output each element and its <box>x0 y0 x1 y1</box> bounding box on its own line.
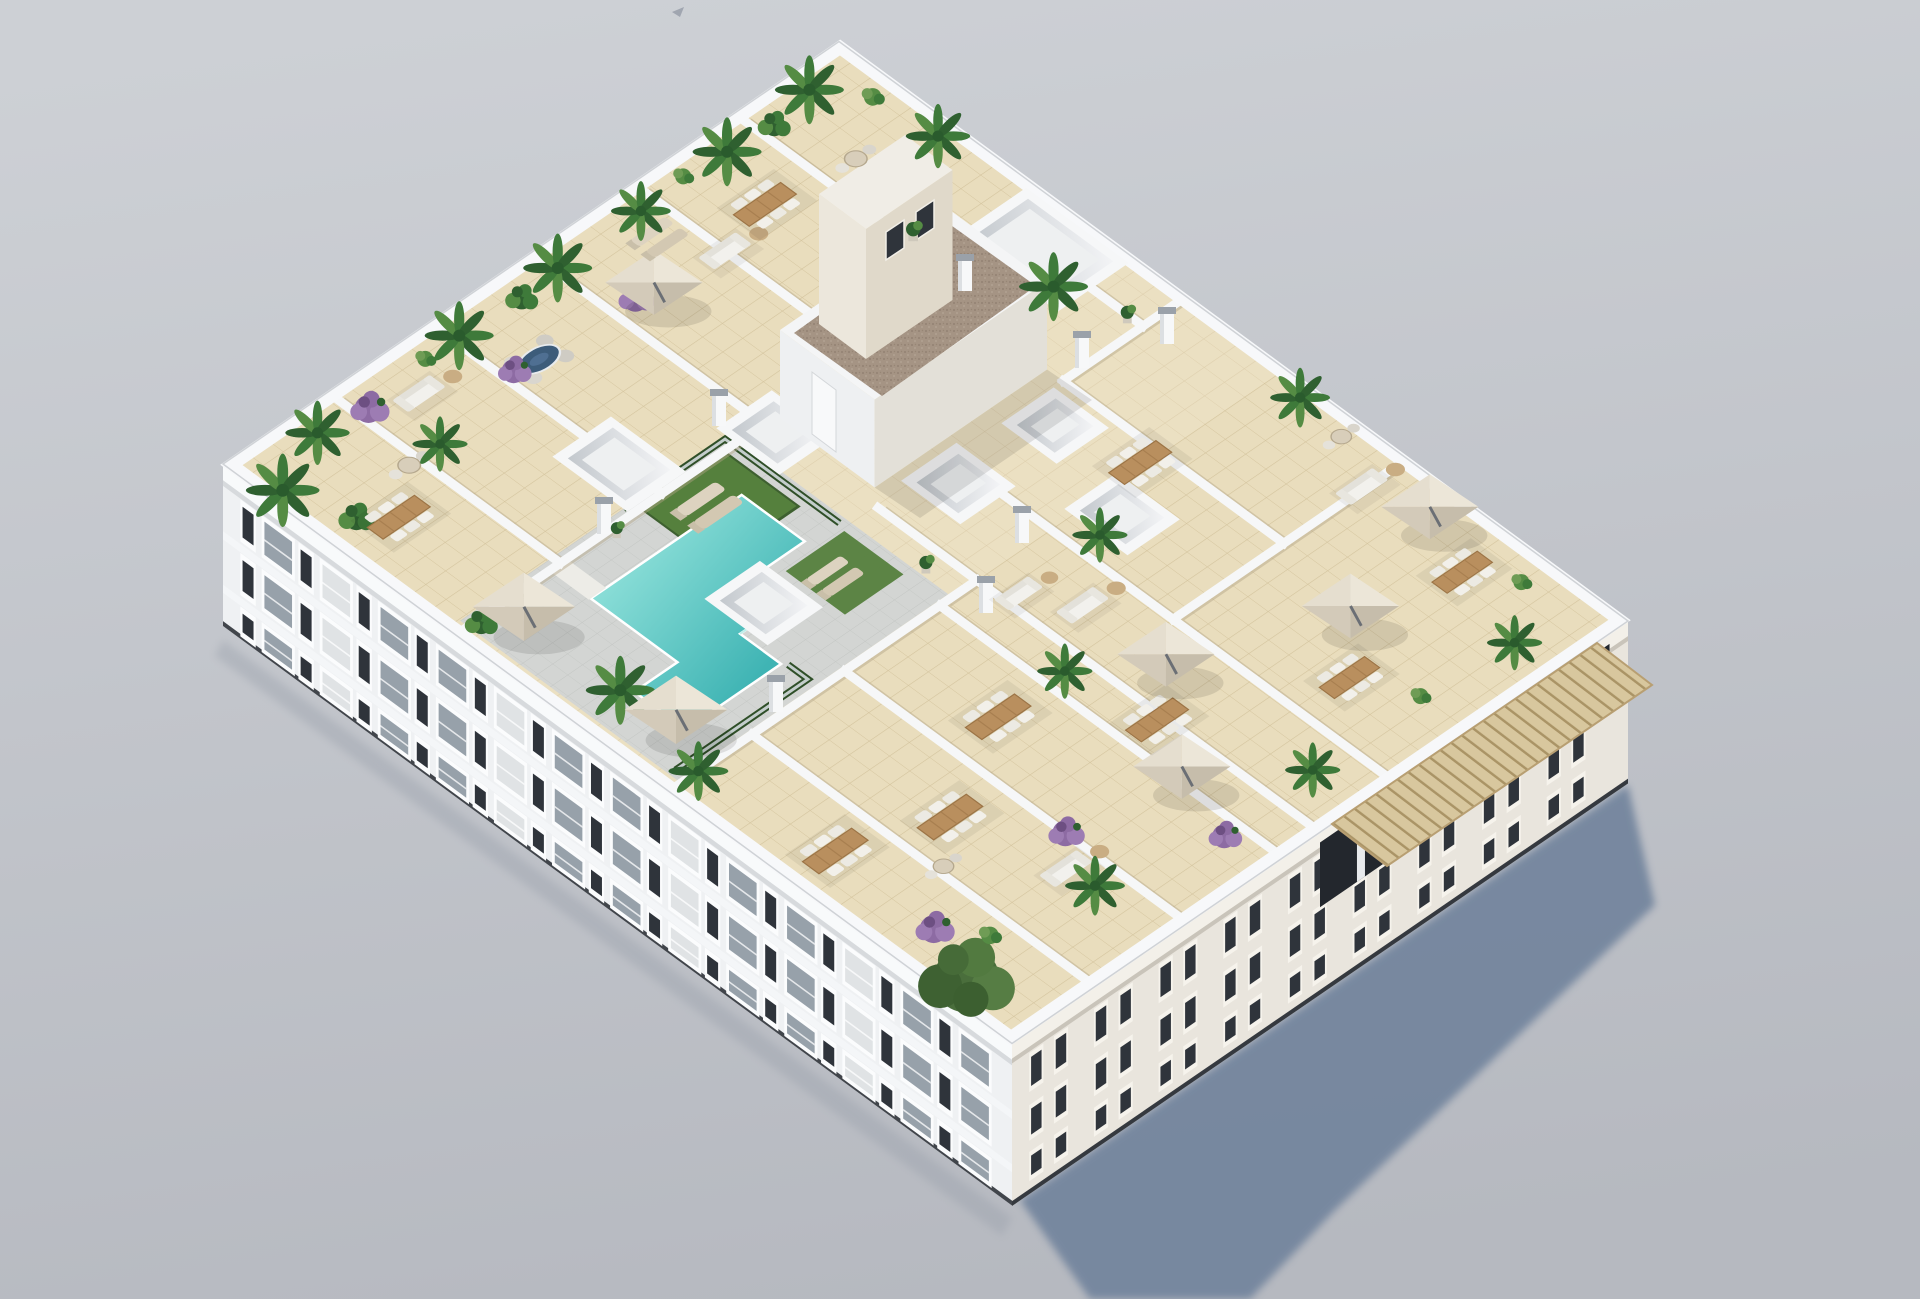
palm <box>1270 368 1330 428</box>
palm <box>1037 644 1092 699</box>
palm <box>611 181 671 241</box>
palm <box>693 117 762 186</box>
palm <box>1285 742 1340 797</box>
palm <box>412 416 467 471</box>
palm <box>1019 252 1088 321</box>
chimney <box>1158 307 1176 344</box>
palm <box>285 401 349 465</box>
chimney <box>710 389 728 426</box>
palm <box>1487 615 1542 670</box>
palm <box>1065 856 1125 916</box>
palm <box>775 55 844 124</box>
chimney <box>1073 331 1091 368</box>
palm <box>669 741 729 801</box>
chimney <box>1013 506 1031 543</box>
chimney <box>977 576 995 613</box>
rooftop-render-image <box>0 0 1920 1299</box>
palm <box>1072 507 1127 562</box>
palm <box>246 454 320 528</box>
render-stage <box>0 0 1920 1299</box>
chimney <box>956 254 974 291</box>
chimney <box>767 675 785 712</box>
palm <box>523 234 592 303</box>
palm <box>906 104 970 168</box>
palm <box>425 301 494 370</box>
chimney <box>595 497 613 534</box>
